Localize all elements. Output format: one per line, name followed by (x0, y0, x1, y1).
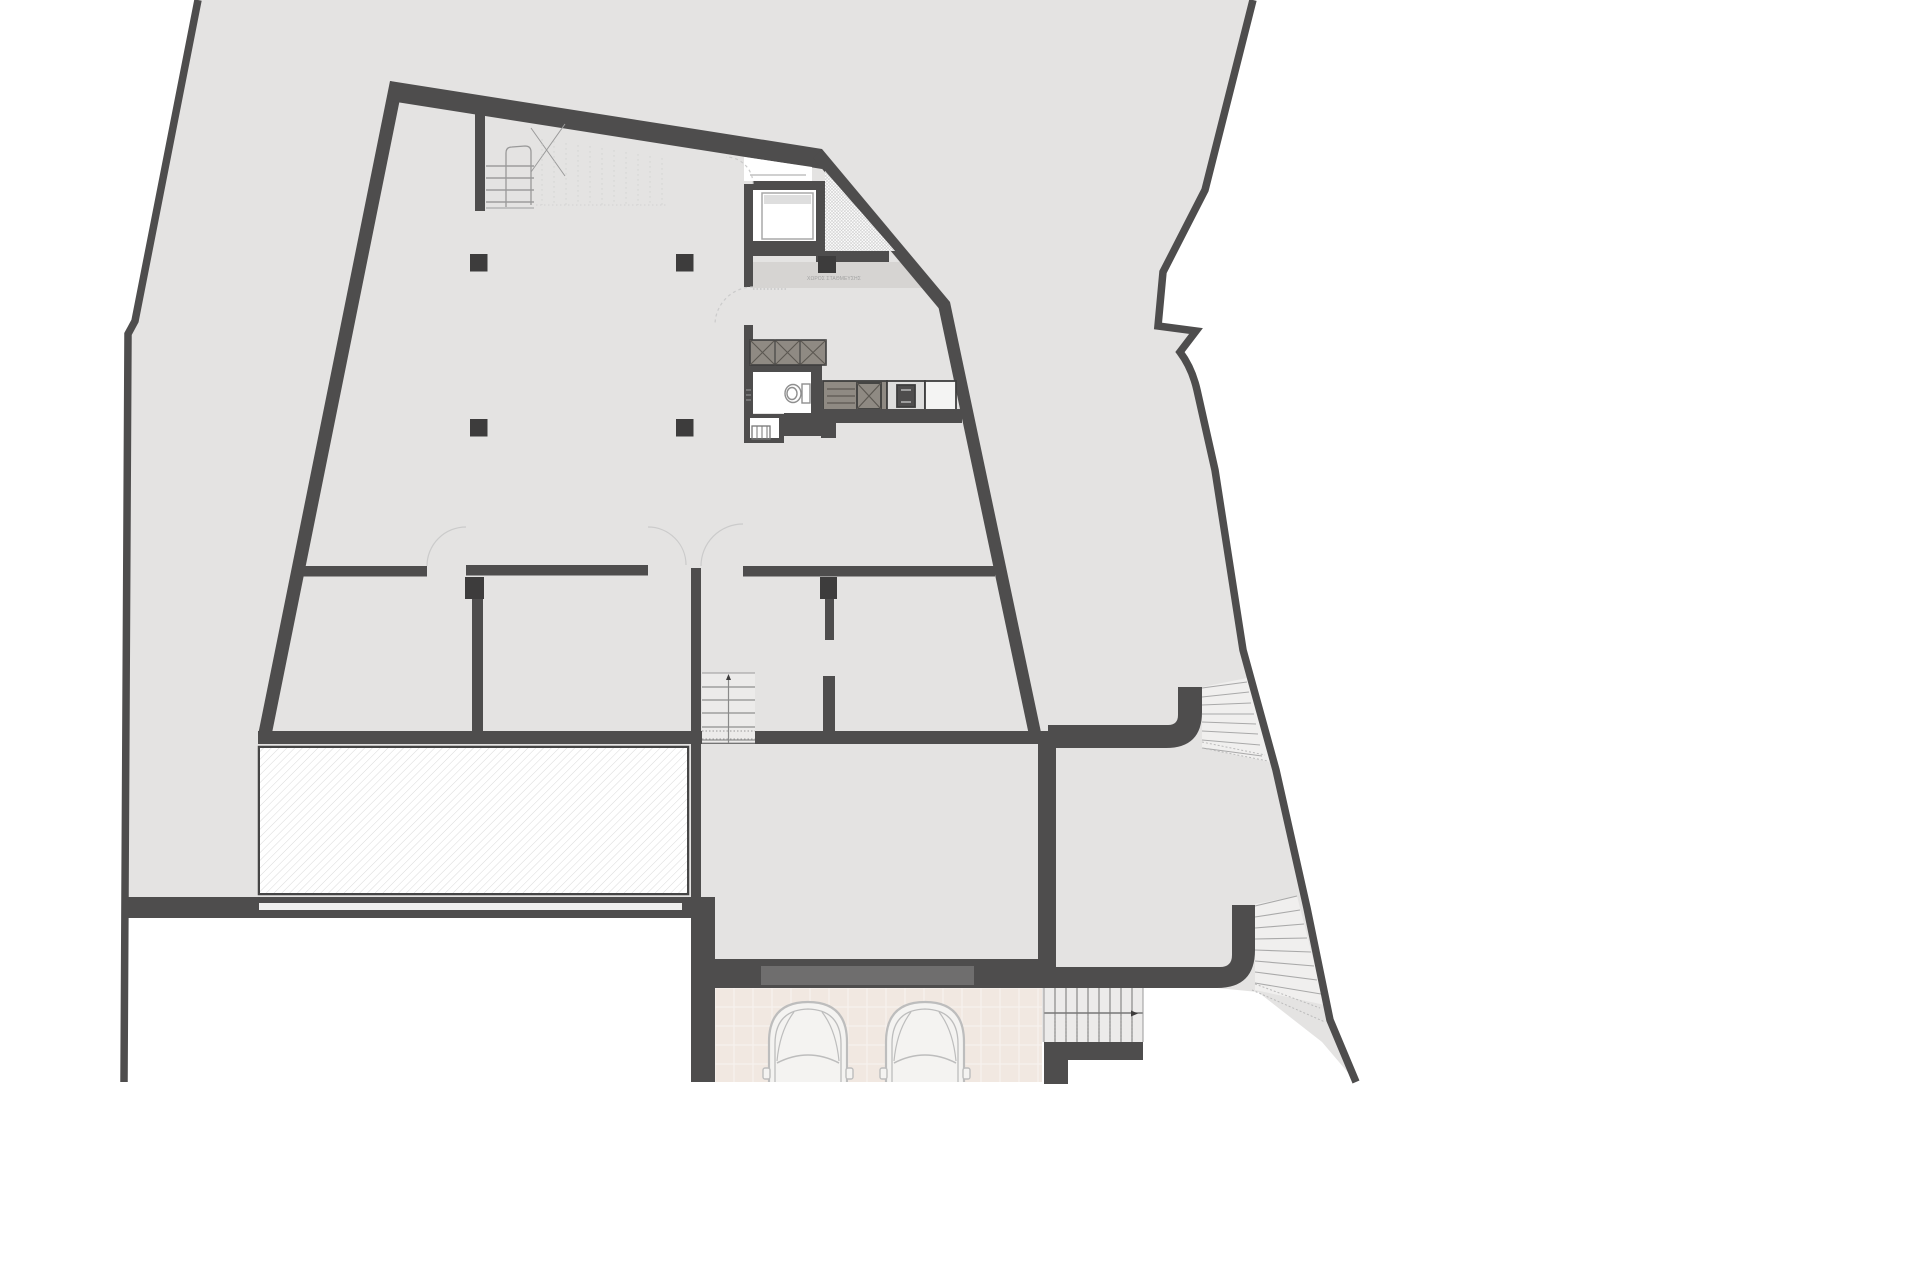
svg-text:ΧΩΡΟΣ ΣΤΑΘΜΕΥΣΗΣ: ΧΩΡΟΣ ΣΤΑΘΜΕΥΣΗΣ (807, 276, 861, 282)
